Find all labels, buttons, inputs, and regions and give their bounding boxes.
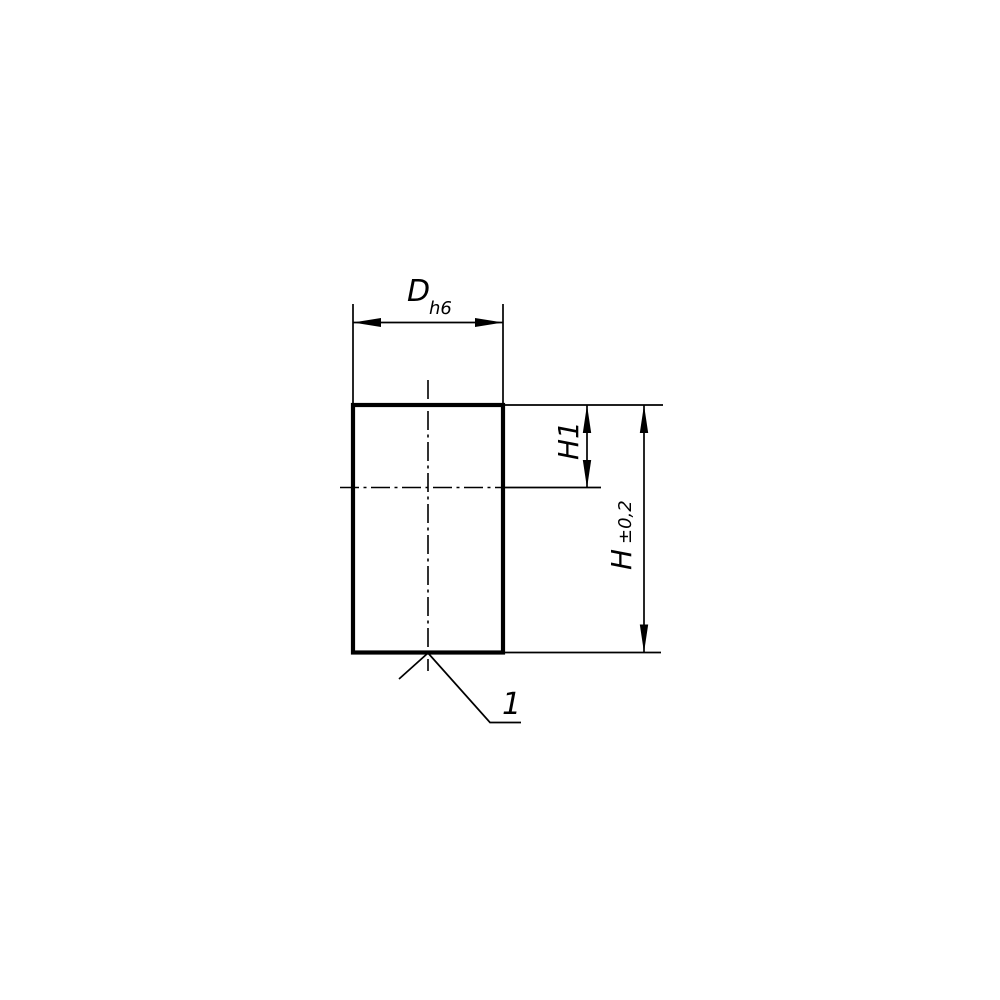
h-dimension-label: H	[605, 549, 638, 570]
technical-drawing: D h6 H1 H ±0,2 1	[0, 0, 1000, 1000]
h1-dimension-label: H1	[552, 421, 585, 460]
d-dimension-label: D	[407, 274, 430, 309]
h-arrow-bottom	[640, 625, 648, 653]
leader-ref-label: 1	[502, 687, 521, 722]
d-arrow-right	[475, 318, 503, 327]
h1-arrow-bottom	[583, 460, 591, 488]
h-tolerance-label: ±0,2	[615, 500, 636, 544]
drawing-canvas: D h6 H1 H ±0,2 1	[0, 0, 1000, 1000]
d-arrow-left	[353, 318, 381, 327]
d-fit-label: h6	[429, 298, 452, 319]
leader-tick	[399, 653, 428, 679]
h-arrow-top	[640, 405, 648, 433]
